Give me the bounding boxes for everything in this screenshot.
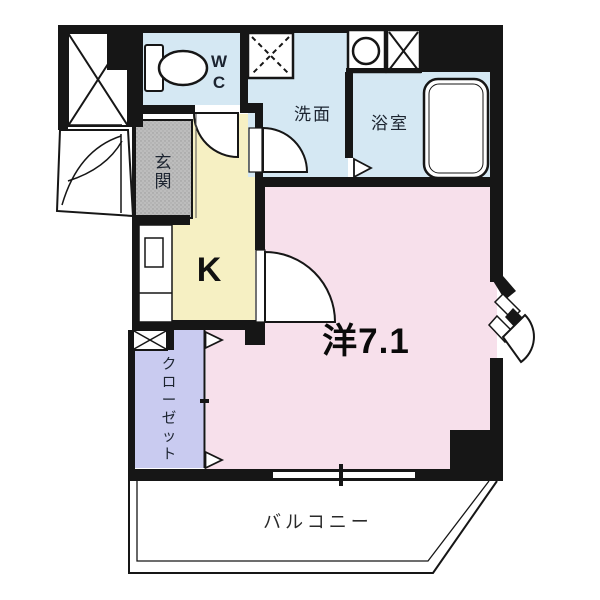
wall-segment bbox=[255, 113, 263, 128]
wall-segment bbox=[245, 322, 265, 345]
bathtub-outer bbox=[424, 79, 488, 178]
western-room-label: 洋7.1 bbox=[322, 322, 410, 361]
washroom-door-leaf bbox=[249, 128, 262, 172]
wall-segment bbox=[58, 25, 68, 130]
bathtub-icon bbox=[424, 79, 488, 178]
closet-pipe-space-icon bbox=[133, 330, 167, 350]
wall-segment bbox=[167, 330, 174, 350]
wall-pillar bbox=[450, 430, 503, 470]
elevator-corner-block bbox=[107, 33, 128, 70]
bathroom-label: 浴室 bbox=[371, 114, 409, 133]
window-glass-line bbox=[273, 472, 415, 478]
common-area bbox=[57, 33, 133, 216]
toilet-bowl bbox=[159, 51, 207, 85]
balcony-label: バルコニー bbox=[263, 512, 373, 532]
washing-machine-space-icon bbox=[248, 33, 293, 78]
meter-box-icon bbox=[348, 30, 385, 72]
kitchen-label: K bbox=[197, 251, 222, 289]
room-door-leaf bbox=[256, 250, 265, 322]
washroom-label: 洗面 bbox=[294, 105, 332, 124]
wall-segment bbox=[420, 25, 503, 72]
wall-segment bbox=[247, 103, 263, 113]
wall-segment bbox=[58, 125, 68, 130]
meter-circle bbox=[353, 38, 379, 64]
closet-door-tick bbox=[200, 399, 209, 403]
wall-segment bbox=[255, 187, 265, 250]
floorplan-drawing: WC 洗面 浴室 玄関 K 洋7.1 クローゼット バルコニー bbox=[0, 0, 600, 600]
wall-segment bbox=[490, 70, 503, 282]
entrance-label: 玄関 bbox=[155, 153, 172, 191]
western-room-floor-lower bbox=[206, 330, 263, 469]
kitchen-counter-icon bbox=[139, 225, 172, 322]
kitchen-floor bbox=[172, 218, 193, 322]
wall-segment bbox=[132, 113, 135, 217]
wall-segment bbox=[128, 105, 195, 114]
window-center-tick bbox=[339, 464, 343, 486]
wall-segment bbox=[345, 72, 353, 158]
wall-segment bbox=[133, 215, 190, 225]
kitchen-counter bbox=[139, 225, 172, 322]
floorplan: WC 洗面 浴室 玄関 K 洋7.1 クローゼット バルコニー bbox=[0, 0, 600, 600]
pipe-space-icon bbox=[387, 30, 420, 72]
wall-segment bbox=[346, 68, 422, 73]
